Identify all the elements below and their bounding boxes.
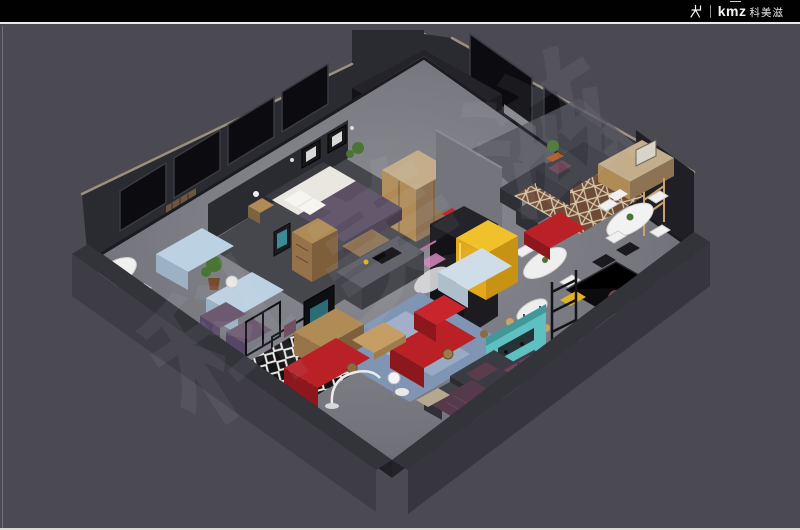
brand-text: kmz 科美滋 (718, 4, 784, 19)
chair-icon (688, 4, 703, 19)
left-edge-line (2, 26, 3, 528)
top-bar: kmz 科美滋 (0, 0, 800, 24)
logo-divider (710, 5, 711, 18)
brand-name-chinese: 科美滋 (750, 8, 785, 19)
brand-logo: kmz 科美滋 (688, 0, 784, 22)
brand-macron-mark (730, 1, 741, 2)
screenshot-canvas: 科美滋 kmz 科美滋 (0, 0, 800, 530)
showroom-isometric-render (0, 0, 800, 530)
brand-name-latin: kmz (718, 4, 747, 18)
